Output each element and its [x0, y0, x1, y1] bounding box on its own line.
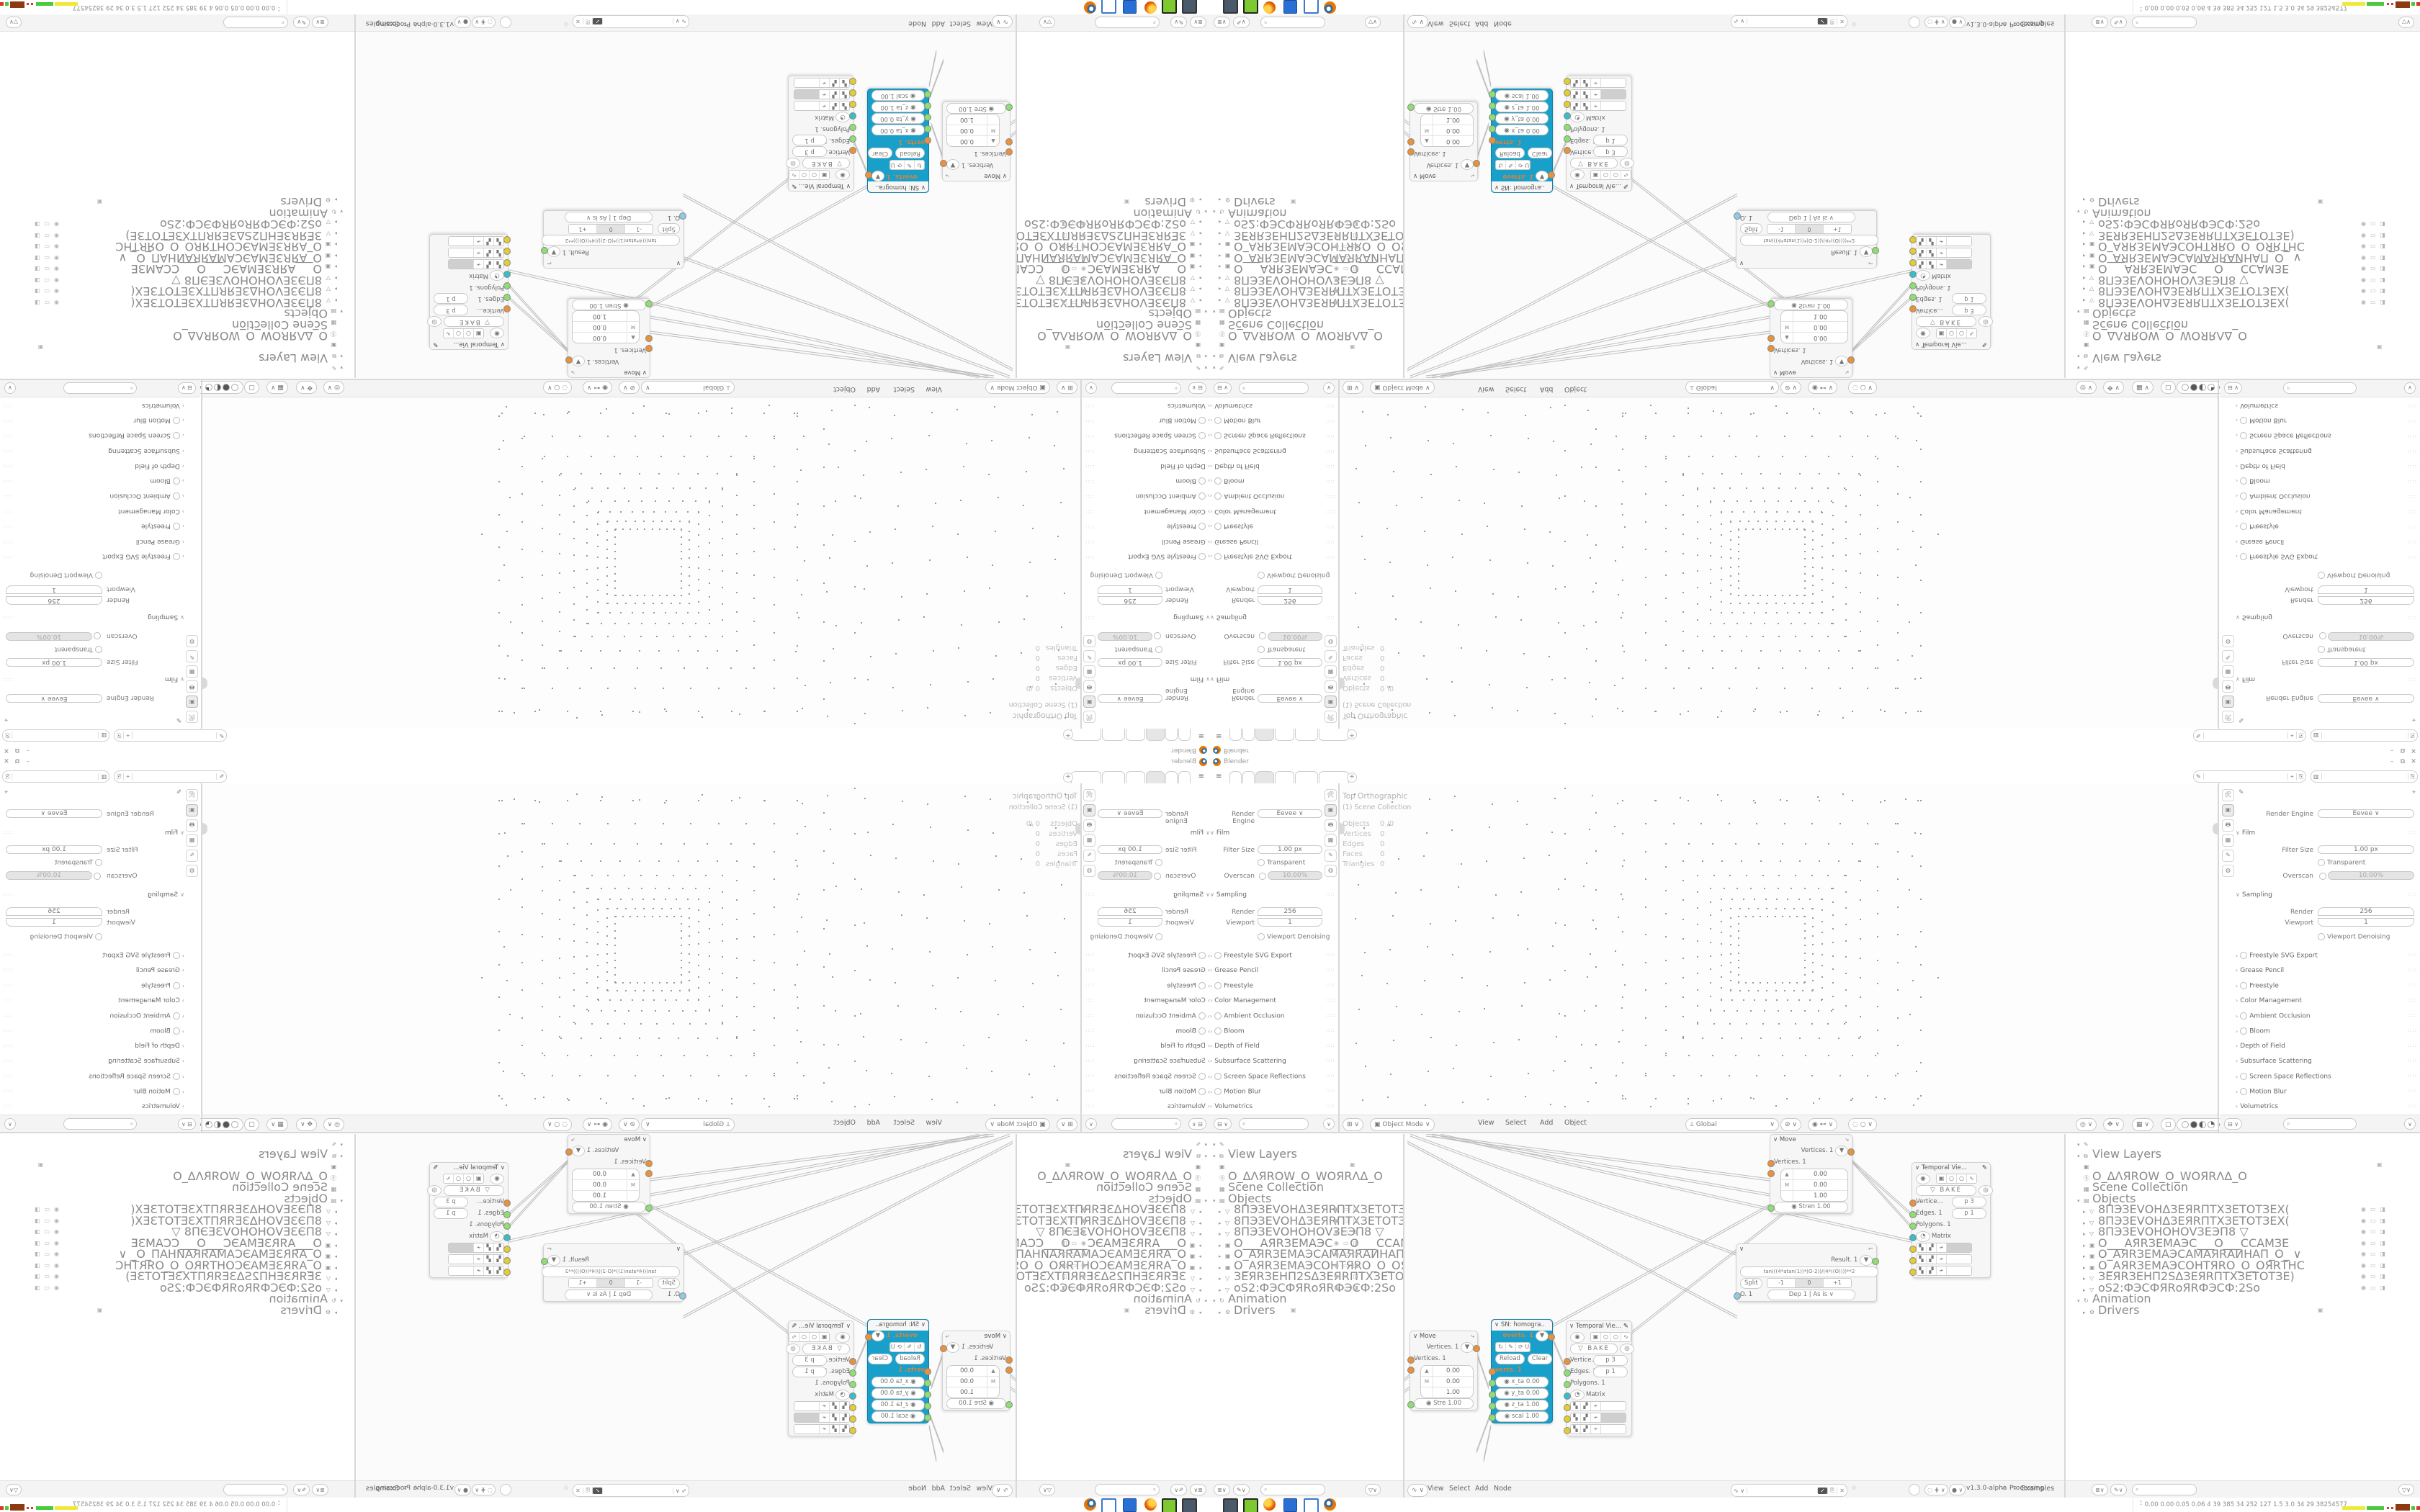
filter-size-field[interactable]: 1.00 px — [1098, 845, 1162, 854]
outliner-row[interactable]: ▾▤Objects — [284, 309, 343, 320]
outliner-row[interactable]: ▸▽8ПЭЗЕVОНΔЗЕЯRПТХЗЕТОТЗЕХ(◉▭◨ — [2077, 287, 2290, 297]
node-formula[interactable]: ∨⌐Result. 1 ▼tan(((4*atan(1))*(O-2))/(4*… — [1736, 210, 1877, 269]
field-y_ta[interactable]: ◉ y_ta 0.00 — [1495, 1388, 1549, 1399]
visibility-toggles[interactable]: ◉▭◨ — [2361, 242, 2390, 253]
copy-icon[interactable]: ⎘ — [2408, 732, 2417, 739]
node-socket[interactable] — [924, 1391, 931, 1398]
section-volumetrics[interactable]: Volumetrics — [2240, 1103, 2278, 1110]
properties-search-input[interactable]: ⌕ — [1239, 1118, 1309, 1130]
workspace-tab-6[interactable] — [1319, 771, 1349, 784]
orientation-dropdown[interactable]: ⟂ Global∨ — [1685, 381, 1779, 394]
section-subsurface-scattering[interactable]: Subsurface Scattering — [1134, 447, 1206, 454]
freestyle-svg-export-checkbox[interactable] — [173, 553, 180, 560]
section-freestyle-svg-export[interactable]: Freestyle SVG Export — [1128, 953, 1196, 960]
node-sn-homography-selected[interactable]: ∨ SN: homogra..☯overts. 1 ▼↻✎ ⟳ Updat...… — [1491, 1319, 1553, 1423]
visibility-toggles[interactable]: ◉▭◨ — [30, 1282, 59, 1293]
node-temporal-viewer[interactable]: ∨ Temporal Vie...✎◉▣○○∿▽ BAKE◎Vertice...… — [788, 1320, 854, 1436]
image-icon[interactable]: ▥ — [2311, 732, 2322, 739]
node-socket[interactable] — [924, 1368, 931, 1375]
section-bloom[interactable]: Bloom — [1224, 477, 1244, 485]
shading-material-icon[interactable] — [214, 384, 221, 391]
section-depth-of-field[interactable]: Depth of Field — [135, 462, 180, 469]
floppy-64-icon[interactable] — [1123, 0, 1137, 14]
node-socket[interactable] — [1407, 1401, 1415, 1408]
close-button[interactable]: ✕ — [3, 747, 10, 754]
section-freestyle-svg-export[interactable]: Freestyle SVG Export — [2249, 553, 2318, 560]
overlays-dropdown[interactable]: ✥ ∨ — [2103, 381, 2124, 394]
node-socket[interactable] — [1407, 148, 1415, 156]
outliner-funnel-dropdown[interactable]: ▽ ∨ — [1365, 17, 1381, 28]
processing-checkbox[interactable]: ✓ — [413, 1485, 419, 1492]
screen-space-reflections-checkbox[interactable] — [2240, 432, 2247, 439]
properties-tab-icon-4[interactable]: ✎ — [1325, 850, 1337, 862]
snap-dropdown[interactable]: ● ∨ — [454, 17, 471, 28]
minimize-button[interactable]: – — [2388, 747, 2396, 754]
viewport-3d[interactable]: Top Orthographic (1) Scene Collection Ob… — [202, 783, 1080, 1115]
visibility-toggles[interactable]: ◉▭◨ — [30, 1271, 59, 1282]
transparent-checkbox[interactable] — [2318, 646, 2325, 653]
outliner-row[interactable]: ▸▽ЗЕЯRЗЕНП2SΔЗЕЯRПТХЗЕТОТЗЕ)◉▭◨ — [990, 230, 1207, 241]
outliner-row[interactable]: ▦Scene Collection — [1213, 320, 1324, 330]
node-socket[interactable] — [1407, 138, 1415, 145]
visibility-toggles[interactable]: ◉▭◨ — [30, 253, 59, 264]
outliner-row[interactable]: ▾▤Objects — [1213, 309, 1271, 320]
id-field[interactable] — [133, 771, 216, 782]
section-freestyle[interactable]: Freestyle — [141, 523, 171, 530]
falloff-dropdown[interactable]: ◌ ○ ∨ — [543, 381, 572, 394]
id-field[interactable] — [2204, 730, 2287, 741]
layout-dropdown[interactable]: ◌ ⋕ ∨ — [1924, 1484, 1948, 1495]
xray-dropdown[interactable]: ▦ ∨ — [266, 381, 288, 394]
node-socket[interactable] — [940, 160, 947, 167]
screenshot-tool-icon[interactable] — [1223, 1498, 1238, 1512]
node-sn-homography-selected[interactable]: ∨ SN: homogra..☯overts. 1 ▼↻✎ ⟳ Updat...… — [1491, 89, 1553, 193]
id-selector-1[interactable]: ✎ ⌖ ⎘ — [114, 729, 227, 742]
node-socket[interactable] — [1489, 1380, 1496, 1387]
id-selector-2[interactable]: ▥ ⎘ — [2311, 770, 2418, 783]
node-socket[interactable] — [924, 91, 931, 98]
outliner-row[interactable]: ▾✎ — [328, 1137, 343, 1148]
node-move[interactable]: ∨ Move⤷Vertices. 1 ▼Vertices. 1▲0.00M0.0… — [568, 298, 650, 378]
gizmo-dropdown[interactable]: ◎ ∨ — [323, 1118, 344, 1131]
floppy-64-icon[interactable] — [1283, 1498, 1297, 1512]
menu-select[interactable]: Select — [950, 19, 971, 27]
node-editor[interactable]: ∨ Move⤷Vertices. 1 ▼Vertices. 1▲0.00M0.0… — [1404, 32, 2064, 378]
properties-tab-icon-2[interactable]: 🖶 — [1083, 680, 1095, 693]
outliner-filter-dropdown[interactable]: ✎ ∨ — [1170, 17, 1187, 28]
node-socket[interactable] — [1564, 1381, 1571, 1388]
section-freestyle-svg-export[interactable]: Freestyle SVG Export — [1224, 953, 1292, 960]
properties-tab-icon-3[interactable]: ▦ — [1083, 665, 1095, 678]
layout-dropdown[interactable]: ◌ ⋕ ∨ — [472, 1484, 496, 1495]
pin-star-icon[interactable]: ☆ — [563, 1485, 569, 1492]
node-socket[interactable] — [924, 1380, 931, 1387]
properties-tab-icon-5[interactable]: ◍ — [1083, 635, 1095, 647]
outliner-row[interactable]: ▸▣О_АЯRЗЕМАЭСАМАЯRАИНАП_О_ ∨◉▭◨ — [119, 253, 343, 264]
menu-select[interactable]: Select — [1505, 385, 1526, 393]
node-socket[interactable] — [1909, 282, 1917, 289]
filter-size-field[interactable]: 1.00 px — [2318, 845, 2414, 854]
shading-material-icon[interactable] — [214, 1121, 221, 1128]
node-socket[interactable] — [1489, 102, 1496, 109]
properties-tab-icon-3[interactable]: ▦ — [1083, 834, 1095, 847]
copy-icon[interactable]: ⎘ — [2408, 773, 2417, 780]
samples-render-field[interactable]: 256 — [2318, 907, 2414, 916]
node-temporal-viewer[interactable]: ∨ Temporal Vie...✎◉▣○○∿▽ BAKE◎Vertice...… — [429, 1162, 508, 1278]
freestyle-svg-export-checkbox[interactable] — [1214, 553, 1222, 560]
workspace-tab-6[interactable] — [1319, 728, 1349, 741]
properties-tab-icon-2[interactable]: 🖶 — [1325, 680, 1337, 693]
section-screen-space-reflections[interactable]: Screen Space Reflections — [89, 1074, 171, 1081]
node-move[interactable]: ∨ Move⤷Vertices. 1 ▼Vertices. 1▲0.00M0.0… — [1770, 298, 1852, 378]
properties-tab-icon-0[interactable]: 🛠 — [2222, 789, 2234, 801]
node-temporal-viewer[interactable]: ∨ Temporal Vie...✎◉▣○○∿▽ BAKE◎Vertice...… — [1566, 1320, 1632, 1436]
add-workspace-button[interactable]: + — [1063, 729, 1073, 739]
layout-dropdown[interactable]: ◌ ⋕ ∨ — [472, 17, 496, 28]
outliner-filter-dropdown[interactable]: ✎ ∨ — [293, 17, 310, 28]
field-x_ta[interactable]: ◉ x_ta 0.00 — [1495, 1377, 1549, 1387]
firefox-icon[interactable] — [1263, 1498, 1276, 1511]
properties-tab-icon-0[interactable]: 🛠 — [186, 789, 198, 801]
node-socket[interactable] — [865, 171, 872, 179]
menu-add[interactable]: Add — [932, 19, 945, 27]
freestyle-checkbox[interactable] — [2240, 982, 2247, 989]
section-freestyle[interactable]: Freestyle — [1224, 523, 1253, 530]
outliner-row[interactable]: ▸⚙Drivers▣ — [1213, 197, 1276, 208]
outliner-row[interactable]: ▾⧉View Layers — [1213, 1148, 1297, 1159]
overlays-dropdown[interactable]: ✥ ∨ — [296, 381, 317, 394]
properties-tab-icon-5[interactable]: ◍ — [2222, 635, 2234, 647]
overscan-field[interactable]: 10.00% — [2328, 632, 2414, 641]
visibility-toggles[interactable]: ◉▭◨ — [1057, 242, 1086, 253]
motion-blur-checkbox[interactable] — [1198, 1088, 1206, 1095]
section-subsurface-scattering[interactable]: Subsurface Scattering — [108, 447, 180, 454]
properties-tab-icon-4[interactable]: ✎ — [186, 850, 198, 862]
filter-size-field[interactable]: 1.00 px — [6, 845, 102, 854]
new-tree-button[interactable] — [1909, 1484, 1920, 1495]
sdcard-app-icon[interactable] — [1162, 1498, 1177, 1512]
editor-type-dropdown[interactable]: ∿ ∨ — [992, 1484, 1013, 1497]
shading-rendered-icon[interactable] — [205, 1121, 212, 1128]
visibility-toggles[interactable]: ◉▭◨ — [2361, 1248, 2390, 1259]
viewport-denoising-checkbox[interactable] — [95, 572, 102, 579]
section-subsurface-scattering[interactable]: Subsurface Scattering — [1134, 1058, 1206, 1065]
outliner-row[interactable]: ▣▣ — [2077, 342, 2092, 353]
freestyle-svg-export-checkbox[interactable] — [2240, 952, 2247, 959]
render-engine-select[interactable]: Eevee ∨ — [6, 809, 102, 818]
section-freestyle-svg-export[interactable]: Freestyle SVG Export — [2249, 953, 2318, 960]
ambient-occlusion-checkbox[interactable] — [173, 492, 180, 500]
render-engine-select[interactable]: Eevee ∨ — [1098, 694, 1162, 703]
node-socket[interactable] — [1489, 1391, 1496, 1398]
node-tree-name-field[interactable] — [603, 16, 673, 27]
properties-context-dropdown[interactable]: ⊟ ∨ — [178, 1118, 196, 1130]
id-field[interactable] — [12, 730, 98, 741]
section-grease-pencil[interactable]: Grease Pencil — [2240, 538, 2284, 545]
outliner-row[interactable]: ▾↻Animation — [1213, 208, 1287, 219]
section-color-management[interactable]: Color Management — [118, 508, 180, 515]
menu-select[interactable]: Select — [894, 385, 915, 393]
section-subsurface-scattering[interactable]: Subsurface Scattering — [2240, 447, 2312, 454]
freestyle-checkbox[interactable] — [1198, 982, 1206, 989]
outliner-row[interactable]: ▾✎ — [1192, 364, 1207, 375]
render-engine-select[interactable]: Eevee ∨ — [1258, 809, 1322, 818]
node-sn-homography-selected[interactable]: ∨ SN: homogra..☯overts. 1 ▼↻✎ ⟳ Updat...… — [867, 1319, 929, 1423]
menu-view[interactable]: View — [1428, 1485, 1444, 1493]
id-field[interactable] — [133, 730, 216, 741]
viewport-3d[interactable]: Top Orthographic (1) Scene Collection Ob… — [1340, 397, 2218, 729]
viewport-3d[interactable]: Top Orthographic (1) Scene Collection Ob… — [1340, 783, 2218, 1115]
bake-button[interactable]: ▽ BAKE — [802, 158, 850, 168]
node-socket[interactable] — [1564, 112, 1571, 120]
pin-icon[interactable]: ⌖ — [124, 773, 133, 780]
properties-tab-icon-1[interactable]: ▣ — [2222, 804, 2234, 816]
bake-button[interactable]: ▽ BAKE — [1916, 1185, 1976, 1196]
properties-options-dropdown[interactable]: ∨ — [1323, 1118, 1335, 1130]
reload-button[interactable]: Reload — [895, 1354, 925, 1364]
outliner-row[interactable]: ▣▣ — [328, 342, 343, 353]
pin-star-icon[interactable]: ☆ — [1851, 20, 1857, 27]
section-volumetrics[interactable]: Volumetrics — [1168, 1103, 1206, 1110]
samples-render-field[interactable]: 256 — [1098, 596, 1162, 605]
pen-icon[interactable]: ✎ — [216, 773, 226, 780]
snap-dropdown[interactable]: ⊘ ∨ — [619, 1118, 640, 1131]
workspace-tab-5[interactable] — [1295, 728, 1318, 741]
node-socket[interactable] — [1872, 247, 1879, 254]
workspace-tab-4[interactable] — [1275, 771, 1294, 784]
formula-field[interactable]: tan(((4*atan(1))*(O-2))/(4*((O))))**2 — [1740, 235, 1878, 246]
node-socket[interactable] — [1473, 1345, 1480, 1352]
section-ambient-occlusion[interactable]: Ambient Occlusion — [109, 1013, 170, 1020]
clear-button[interactable]: Clear — [1528, 148, 1552, 158]
node-socket[interactable] — [1489, 1414, 1496, 1421]
outliner-row[interactable]: ⓈO_ΔΛЯROW_O_WOЯRΛΔ_O — [1037, 331, 1207, 342]
split-button[interactable]: Split — [1740, 223, 1762, 234]
node-socket[interactable] — [924, 114, 931, 121]
visibility-toggles[interactable]: ◉▭◨ — [30, 1260, 59, 1271]
overlays-dropdown[interactable]: ✥ ∨ — [296, 1118, 317, 1131]
section-color-management[interactable]: Color Management — [2240, 508, 2302, 515]
samples-viewport-field[interactable]: 1 — [1098, 585, 1162, 594]
shading-wireframe-icon[interactable] — [231, 1121, 238, 1128]
outliner-display-dropdown[interactable]: ≣ ∨ — [312, 1484, 328, 1495]
outliner-row[interactable]: ▾✎ — [1192, 1137, 1207, 1148]
clear-button[interactable]: Clear — [868, 1354, 892, 1364]
section-ambient-occlusion[interactable]: Ambient Occlusion — [109, 492, 170, 500]
outliner-filter-dropdown[interactable]: ✎ ∨ — [1170, 1484, 1187, 1495]
visibility-toggles[interactable]: ◉▭◨ — [2361, 275, 2390, 286]
field-y_ta[interactable]: ◉ y_ta 0.00 — [871, 113, 925, 124]
freestyle-checkbox[interactable] — [1214, 982, 1222, 989]
properties-tab-icon-4[interactable]: ✎ — [186, 650, 198, 662]
overscan-checkbox[interactable] — [2319, 873, 2326, 880]
section-bloom[interactable]: Bloom — [150, 477, 170, 485]
node-socket[interactable] — [1489, 1403, 1496, 1410]
menu-hamburger-icon[interactable]: ≡ — [1216, 732, 1222, 739]
samples-render-field[interactable]: 256 — [6, 596, 102, 605]
visibility-toggles[interactable]: ◉▭◨ — [1057, 1282, 1086, 1293]
outliner-row[interactable]: ⓈO_ΔΛЯROW_O_WOЯRΛΔ_O — [173, 331, 343, 342]
node-socket[interactable] — [1909, 294, 1917, 301]
outliner-row[interactable]: ▸▽8ПЭЗЕVОНОНОVЗЕЭП8 ▽◉▭◨ — [1036, 275, 1207, 286]
menu-view[interactable]: View — [1428, 19, 1444, 27]
node-socket[interactable] — [1767, 1160, 1775, 1167]
visibility-toggles[interactable]: ◉▭◨ — [30, 220, 59, 230]
node-socket[interactable] — [1564, 135, 1571, 143]
outliner-row[interactable]: ▾⧉View Layers — [2077, 354, 2161, 364]
add-workspace-button[interactable]: + — [1063, 773, 1073, 783]
transparent-checkbox[interactable] — [95, 646, 102, 653]
snap-dropdown[interactable]: ● ∨ — [1949, 17, 1966, 28]
node-socket[interactable] — [503, 1234, 511, 1241]
snap-dropdown[interactable]: ● ∨ — [1949, 1484, 1966, 1495]
shading-material-icon[interactable] — [2199, 384, 2206, 391]
shading-solid-icon[interactable] — [2190, 1121, 2197, 1128]
visibility-toggles[interactable]: ◉▭◨ — [30, 1215, 59, 1226]
node-socket[interactable] — [1564, 1416, 1571, 1423]
section-subsurface-scattering[interactable]: Subsurface Scattering — [2240, 1058, 2312, 1065]
overscan-checkbox[interactable] — [94, 873, 101, 880]
outliner-row[interactable]: ▸▽ЗЕЯRЗЕНП2SΔЗЕЯRПТХЗЕТОТЗЕ)◉▭◨ — [2077, 230, 2295, 241]
node-socket[interactable] — [1005, 1401, 1013, 1408]
add-workspace-button[interactable]: + — [1347, 773, 1357, 783]
node-editor[interactable]: ∨ Move⤷Vertices. 1 ▼Vertices. 1▲0.00M0.0… — [356, 1134, 1016, 1480]
outliner-funnel-dropdown[interactable]: ▽ ∨ — [1039, 1484, 1055, 1495]
image-icon[interactable]: ▥ — [98, 773, 109, 780]
snap-dropdown[interactable]: ⊘ ∨ — [619, 381, 640, 394]
field-x_ta[interactable]: ◉ x_ta 0.00 — [871, 1377, 925, 1387]
menu-object[interactable]: Object — [833, 1119, 856, 1127]
outliner-row[interactable]: ▦Scene Collection — [2077, 320, 2188, 330]
node-socket[interactable] — [1909, 1269, 1917, 1276]
section-ambient-occlusion[interactable]: Ambient Occlusion — [1135, 492, 1196, 500]
workspace-tab-3[interactable] — [1255, 728, 1274, 741]
properties-tab-icon-5[interactable]: ◍ — [186, 865, 198, 877]
node-socket[interactable] — [503, 305, 511, 312]
outliner-row[interactable]: ▾✎ — [1213, 364, 1228, 375]
section-depth-of-field[interactable]: Depth of Field — [1214, 462, 1260, 469]
mode-dropdown[interactable]: ▣ Object Mode ∨ — [1370, 381, 1435, 394]
ambient-occlusion-checkbox[interactable] — [1214, 492, 1222, 500]
samples-viewport-field[interactable]: 1 — [2318, 585, 2414, 594]
properties-options-dropdown[interactable]: ∨ — [2404, 1118, 2416, 1130]
node-socket[interactable] — [849, 124, 856, 131]
bake-button[interactable]: ▽ BAKE — [1570, 158, 1618, 168]
menu-view[interactable]: View — [976, 1485, 992, 1493]
split-button[interactable]: Split — [658, 223, 680, 234]
freestyle-checkbox[interactable] — [173, 982, 180, 989]
viewport-denoising-checkbox[interactable] — [1258, 933, 1265, 940]
pin-icon[interactable]: ⌖ — [2412, 716, 2416, 723]
samples-render-field[interactable]: 256 — [2318, 596, 2414, 605]
overscan-field[interactable]: 10.00% — [2328, 871, 2414, 880]
outliner-search-input[interactable]: ⌕ — [1260, 1484, 1325, 1495]
visibility-toggles[interactable]: ◉▭◨ — [2361, 287, 2390, 297]
properties-tab-icon-3[interactable]: ▦ — [2222, 665, 2234, 678]
orientation-dropdown[interactable]: ⟂ Global∨ — [641, 381, 735, 394]
shading-wireframe-icon[interactable] — [231, 384, 238, 391]
snap-dropdown[interactable]: ⊘ ∨ — [1780, 1118, 1801, 1131]
sidebar-handle-left[interactable] — [1075, 678, 1080, 689]
outliner-row[interactable]: ▾▤Objects — [1149, 309, 1207, 320]
close-button[interactable]: ✕ — [2410, 758, 2417, 765]
id-selector-2[interactable]: ▥ ⎘ — [2, 770, 109, 783]
viewport-denoising-checkbox[interactable] — [1155, 572, 1162, 579]
node-socket[interactable] — [849, 1381, 856, 1388]
workspace-tab-1[interactable] — [1229, 728, 1242, 741]
section-color-management[interactable]: Color Management — [1144, 508, 1206, 515]
editor-type-dropdown[interactable]: ∿ ∨ — [1407, 1484, 1428, 1497]
outliner-search-input[interactable]: ⌕ — [1260, 17, 1325, 28]
section-bloom[interactable]: Bloom — [2249, 477, 2269, 485]
bake-button[interactable]: ▽ BAKE — [444, 316, 504, 327]
snap-dropdown[interactable]: ● ∨ — [454, 1484, 471, 1495]
section-motion-blur[interactable]: Motion Blur — [1224, 417, 1260, 424]
overscan-field[interactable]: 10.00% — [6, 632, 92, 641]
node-socket[interactable] — [1489, 1368, 1496, 1375]
properties-tab-icon-2[interactable]: 🖶 — [2222, 680, 2234, 693]
freestyle-svg-export-checkbox[interactable] — [1214, 952, 1222, 959]
node-socket[interactable] — [940, 1345, 947, 1352]
properties-search-input[interactable]: ⌕ — [63, 382, 137, 394]
section-ambient-occlusion[interactable]: Ambient Occlusion — [2249, 492, 2310, 500]
delete-icon[interactable]: ✕ — [1837, 1488, 1847, 1494]
outliner-row[interactable]: ▣▣ — [1192, 1159, 1207, 1170]
node-editor[interactable]: ∨ Move⤷Vertices. 1 ▼Vertices. 1▲0.00M0.0… — [356, 32, 1016, 378]
bake-button[interactable]: ▽ BAKE — [1570, 1344, 1618, 1354]
firefox-icon[interactable] — [1263, 1, 1276, 14]
samples-render-field[interactable]: 256 — [1258, 907, 1322, 916]
editor-type-dropdown[interactable]: ⊞ ∨ — [1343, 381, 1363, 394]
outliner-row[interactable]: ▣▣ — [2077, 1159, 2092, 1170]
viewport-denoising-checkbox[interactable] — [2318, 933, 2325, 940]
outliner-row[interactable]: ▦Scene Collection — [1096, 320, 1207, 330]
close-button[interactable]: ✕ — [3, 758, 10, 765]
section-depth-of-field[interactable]: Depth of Field — [1160, 1043, 1206, 1050]
ambient-occlusion-checkbox[interactable] — [2240, 492, 2247, 500]
node-socket[interactable] — [849, 1427, 856, 1434]
proportional-edit-dropdown[interactable]: ◉ ⊷ ∨ — [1808, 381, 1837, 394]
pin-icon[interactable]: ⌖ — [2287, 773, 2296, 780]
bake-button[interactable]: ▽ BAKE — [444, 1185, 504, 1196]
outliner-funnel-dropdown[interactable]: ▽ ∨ — [2398, 1484, 2414, 1495]
field-scal[interactable]: ◉ scal 1.00 — [1495, 1411, 1549, 1422]
visibility-toggles[interactable]: ◉▭◨ — [1057, 220, 1086, 230]
maximize-button[interactable]: ⧉ — [2399, 758, 2406, 765]
menu-add[interactable]: Add — [867, 1119, 880, 1127]
outliner-row[interactable]: ▸⚙Drivers▣ — [2077, 1305, 2140, 1315]
outliner-search-input[interactable]: ⌕ — [223, 17, 288, 28]
id-selector-1[interactable]: ✎ ⌖ ⎘ — [114, 770, 227, 783]
section-depth-of-field[interactable]: Depth of Field — [1214, 1043, 1260, 1050]
section-freestyle[interactable]: Freestyle — [1224, 983, 1253, 990]
outliner-row[interactable]: ▸▽8ПЭЗЕVОНΔЗЕЯRПТХЗЕТОТЗЕХ(◉▭◨ — [130, 287, 343, 297]
workspace-tab-2[interactable] — [1242, 771, 1255, 784]
filter-size-field[interactable]: 1.00 px — [2318, 658, 2414, 667]
new-tree-button[interactable] — [500, 17, 511, 28]
samples-render-field[interactable]: 256 — [1258, 596, 1322, 605]
node-socket[interactable] — [1548, 171, 1555, 179]
id-field[interactable] — [12, 771, 98, 782]
outliner-funnel-dropdown[interactable]: ▽ ∨ — [1365, 1484, 1381, 1495]
node-tree-name-field[interactable] — [603, 1485, 673, 1496]
section-volumetrics[interactable]: Volumetrics — [2240, 402, 2278, 409]
falloff-dropdown[interactable]: ◌ ○ ∨ — [543, 1118, 572, 1131]
id-selector-2[interactable]: ▥ ⎘ — [2, 729, 109, 742]
overscan-checkbox[interactable] — [1259, 873, 1266, 880]
field-y_ta[interactable]: ◉ y_ta 0.00 — [871, 1388, 925, 1399]
node-socket[interactable] — [645, 1205, 653, 1212]
